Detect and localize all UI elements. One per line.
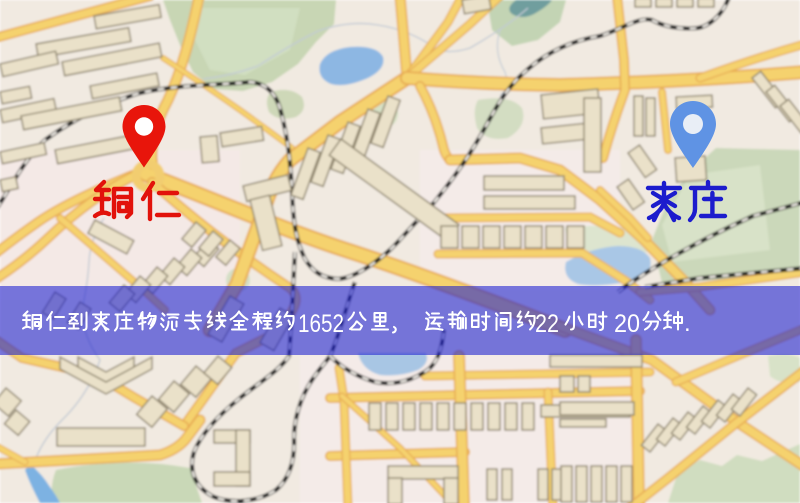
svg-text:20: 20 xyxy=(614,310,640,338)
svg-text:22: 22 xyxy=(535,310,559,338)
svg-text:.: . xyxy=(684,310,691,337)
svg-text:1652: 1652 xyxy=(298,310,344,338)
